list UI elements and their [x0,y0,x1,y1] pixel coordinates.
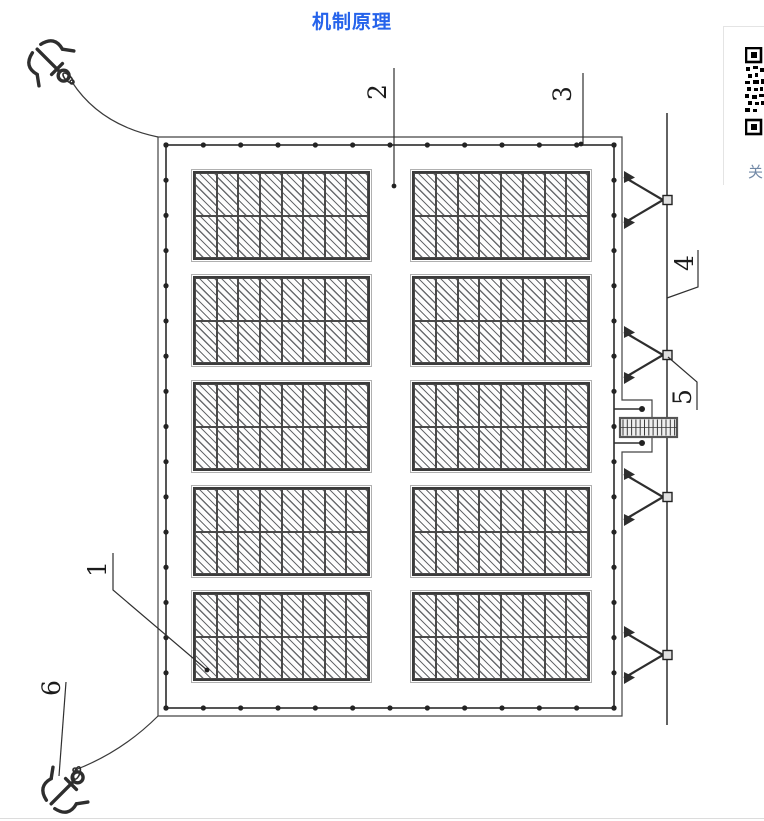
panel-cell [303,216,325,259]
panel-cell [414,594,436,637]
panel-cell [436,216,458,259]
panel-cell [479,637,501,680]
panel-cell [436,173,458,216]
panel-cell [238,637,260,680]
callout-label-4: 4 [667,246,701,280]
panel-cell [282,173,304,216]
pv-panel-unit [193,276,370,365]
panel-cell [479,384,501,427]
panel-cell [566,594,588,637]
panel-cell [346,384,368,427]
panel-cell [325,637,347,680]
panel-cell [346,489,368,532]
panel-cell [414,173,436,216]
panel-cell [414,321,436,364]
panel-cell [260,384,282,427]
panel-cell [479,489,501,532]
panel-cell [545,173,567,216]
panel-cell [501,321,523,364]
panel-cell [325,594,347,637]
panel-cell [501,637,523,680]
panel-cell [436,278,458,321]
panel-cell [479,594,501,637]
qr-side-widget[interactable]: 关 [723,26,764,185]
panel-cell [523,637,545,680]
panel-cell [566,384,588,427]
panel-cell [436,384,458,427]
callout-label-6: 6 [34,671,68,705]
panel-cell [479,173,501,216]
panel-cell [414,427,436,470]
panel-cell [436,532,458,575]
panel-cell [217,278,239,321]
panel-cell [217,532,239,575]
panel-cell [303,637,325,680]
panel-cell [458,384,480,427]
panel-cell [479,216,501,259]
panel-cell [325,489,347,532]
panel-cell [479,278,501,321]
panel-cell [414,384,436,427]
panel-cell [238,278,260,321]
panel-cell [282,278,304,321]
panel-cell [325,278,347,321]
panel-cell [282,427,304,470]
panel-cell [346,594,368,637]
pv-panel-unit [193,487,370,576]
panel-cell [282,321,304,364]
panel-cell [545,427,567,470]
panel-cell [217,384,239,427]
panel-cell [325,216,347,259]
panel-cell [303,594,325,637]
panel-cell [282,384,304,427]
panel-cell [195,489,217,532]
panel-cell [238,173,260,216]
panel-cell [414,278,436,321]
panel-cell [195,173,217,216]
panel-cell [545,321,567,364]
panel-cell [346,173,368,216]
widget-label: 关 [748,161,763,182]
panel-cell [217,427,239,470]
panel-cell [414,532,436,575]
panel-cell [566,427,588,470]
panel-cell [436,489,458,532]
pv-panel-unit [193,171,370,260]
panel-cell [414,637,436,680]
panel-cell [523,384,545,427]
panel-cell [501,594,523,637]
panel-cell [501,489,523,532]
panel-cell [217,594,239,637]
panel-cell [545,637,567,680]
panel-cell [566,216,588,259]
panel-cell [260,173,282,216]
panel-cell [217,637,239,680]
panel-cell [303,427,325,470]
panel-cell [458,532,480,575]
panel-cell [523,594,545,637]
panel-cell [195,594,217,637]
panel-cell [303,384,325,427]
pv-panel-unit [193,382,370,471]
panel-cell [458,489,480,532]
panel-cell [346,216,368,259]
pv-panel-unit [412,592,590,681]
panel-cell [195,384,217,427]
pv-panel-unit [412,382,590,471]
panel-cell [501,532,523,575]
panel-cell [414,489,436,532]
panel-cell [501,278,523,321]
panel-cell [545,532,567,575]
panel-cell [458,216,480,259]
panel-cell [260,637,282,680]
panel-cell [458,173,480,216]
panel-cell [282,594,304,637]
panel-cell [303,321,325,364]
panel-cell [346,321,368,364]
panel-cell [260,594,282,637]
panel-cell [501,173,523,216]
panel-cell [523,427,545,470]
panel-cell [346,637,368,680]
panel-cell [566,173,588,216]
panel-cell [523,321,545,364]
panel-cell [458,278,480,321]
bottom-divider [0,818,764,819]
panel-cell [566,637,588,680]
panel-cell [217,321,239,364]
panel-cell [566,532,588,575]
panel-cell [260,532,282,575]
panel-cell [458,321,480,364]
panel-cell [195,278,217,321]
panel-cell [523,532,545,575]
panel-cell [436,594,458,637]
panel-cell [195,427,217,470]
panel-cell [303,173,325,216]
panel-cell [346,532,368,575]
panel-cell [458,637,480,680]
panel-cell [545,489,567,532]
panel-cell [238,216,260,259]
pv-panel-unit [412,171,590,260]
panel-cell [545,278,567,321]
panel-cell [545,216,567,259]
panel-cell [217,216,239,259]
panel-cell [303,532,325,575]
panel-cell [195,637,217,680]
panel-cell [260,321,282,364]
panel-cell [436,427,458,470]
panel-cell [346,278,368,321]
qr-code-icon [745,47,764,137]
panel-cell [238,427,260,470]
callout-label-5: 5 [665,380,699,414]
panel-cell [260,278,282,321]
panel-cell [260,216,282,259]
panel-cell [325,427,347,470]
panel-cell [523,278,545,321]
panel-cell [282,637,304,680]
panel-cell [479,427,501,470]
panel-cell [414,216,436,259]
panel-cell [523,216,545,259]
panel-cell [501,384,523,427]
panel-cell [325,384,347,427]
panel-cell [501,216,523,259]
panel-cell [545,594,567,637]
panel-cell [566,278,588,321]
panel-cell [238,532,260,575]
panel-cell [238,384,260,427]
panel-cell [325,532,347,575]
panel-cell [523,489,545,532]
panel-cell [303,489,325,532]
panel-cell [282,216,304,259]
panel-cell [545,384,567,427]
panel-cell [238,489,260,532]
pv-panel-unit [193,592,370,681]
panel-cell [479,321,501,364]
panel-cell [282,489,304,532]
panel-cell [523,173,545,216]
panel-cell [260,427,282,470]
panel-cell [195,321,217,364]
panel-cell [217,173,239,216]
panel-cell [325,321,347,364]
panel-cell [282,532,304,575]
panel-cell [566,321,588,364]
panel-cell [458,594,480,637]
panel-cell [436,637,458,680]
callout-label-2: 2 [360,75,394,109]
panel-cell [217,489,239,532]
pv-panel-unit [412,487,590,576]
panel-cell [303,278,325,321]
panel-cell [566,489,588,532]
panel-cell [238,321,260,364]
panel-cell [479,532,501,575]
pv-panel-array [0,0,764,821]
callout-label-1: 1 [80,552,114,586]
panel-cell [238,594,260,637]
pv-panel-unit [412,276,590,365]
panel-cell [325,173,347,216]
callout-label-3: 3 [545,77,579,111]
panel-cell [260,489,282,532]
panel-cell [346,427,368,470]
panel-cell [501,427,523,470]
panel-cell [458,427,480,470]
panel-cell [195,532,217,575]
panel-cell [195,216,217,259]
diagram-canvas: 机制原理 [0,0,764,821]
panel-cell [436,321,458,364]
